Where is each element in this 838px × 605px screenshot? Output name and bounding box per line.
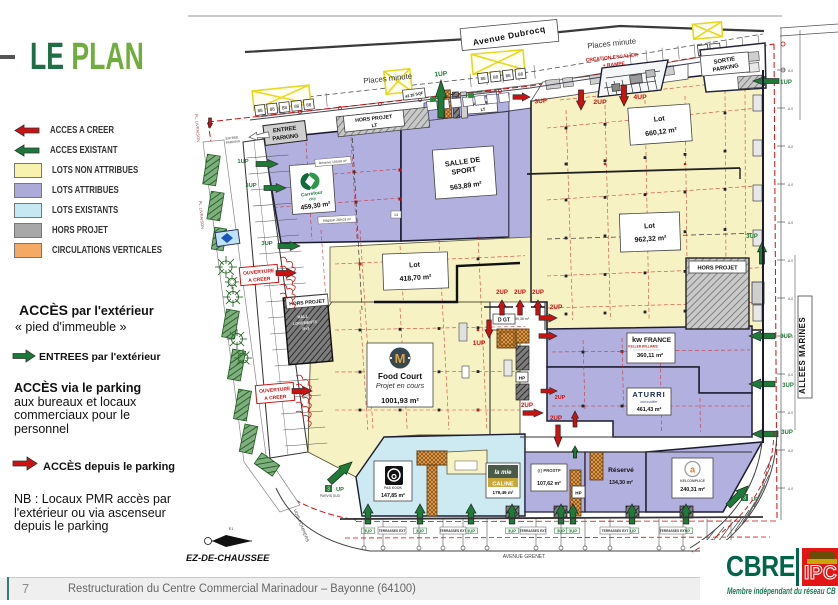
svg-text:KELCOMPLICE: KELCOMPLICE <box>680 479 705 483</box>
svg-text:4UP: 4UP <box>633 94 647 101</box>
svg-text:TERRASSES EXT: TERRASSES EXT <box>660 529 687 533</box>
svg-text:Places minute: Places minute <box>587 36 637 50</box>
svg-text:A.0: A.0 <box>788 183 793 187</box>
svg-text:2UP: 2UP <box>496 290 508 296</box>
svg-text:HP: HP <box>575 491 581 496</box>
svg-text:3UP: 3UP <box>467 529 475 534</box>
svg-text:3UP: 3UP <box>569 529 577 534</box>
svg-text:2UP: 2UP <box>532 290 544 296</box>
svg-text:E1: E1 <box>229 527 233 531</box>
svg-text:A.0: A.0 <box>788 259 793 263</box>
svg-text:3UP: 3UP <box>416 529 424 534</box>
svg-text:HP: HP <box>519 376 525 381</box>
svg-text:PAS KOOK: PAS KOOK <box>384 486 402 490</box>
svg-text:immobilier: immobilier <box>640 400 658 404</box>
svg-text:Lot: Lot <box>644 223 656 231</box>
svg-text:Food Court: Food Court <box>378 372 422 381</box>
svg-text:1UP: 1UP <box>434 70 448 78</box>
svg-text:R+3: R+3 <box>302 327 309 332</box>
svg-text:VOIE POMPIERS: VOIE POMPIERS <box>293 508 311 542</box>
svg-text:147,85 m²: 147,85 m² <box>381 493 405 499</box>
svg-text:PARVIS SUD: PARVIS SUD <box>320 494 341 498</box>
svg-text:M: M <box>395 351 406 366</box>
svg-text:3UP: 3UP <box>746 234 758 240</box>
svg-text:UP: UP <box>336 487 344 493</box>
svg-text:la mie: la mie <box>494 470 512 476</box>
svg-text:A.0: A.0 <box>788 373 793 377</box>
svg-text:PL. LIVRAISON: PL. LIVRAISON <box>194 113 201 142</box>
svg-text:Lot: Lot <box>409 262 421 270</box>
svg-text:A.0: A.0 <box>788 297 793 301</box>
svg-text:ATURRI: ATURRI <box>632 390 665 399</box>
svg-text:2UP: 2UP <box>555 395 566 401</box>
svg-text:3UP: 3UP <box>245 183 256 189</box>
svg-text:240,31 m²: 240,31 m² <box>680 487 705 493</box>
svg-text:3: 3 <box>327 487 330 493</box>
svg-text:HORS PROJET: HORS PROJET <box>697 266 738 272</box>
svg-text:TERRASSES EXT: TERRASSES EXT <box>602 529 629 533</box>
svg-text:360,11 m²: 360,11 m² <box>637 352 663 359</box>
svg-text:CALINE: CALINE <box>492 482 514 488</box>
svg-text:PL. LIVRAISON: PL. LIVRAISON <box>198 200 205 229</box>
svg-text:3UP: 3UP <box>508 529 516 534</box>
svg-text:TERRASSES EXT: TERRASSES EXT <box>520 529 547 533</box>
svg-text:A.0: A.0 <box>788 107 793 111</box>
svg-text:1UP: 1UP <box>237 159 248 165</box>
svg-text:Réservé: Réservé <box>608 467 634 474</box>
svg-text:3UP: 3UP <box>364 529 372 534</box>
svg-text:FRANCE: FRANCE <box>644 337 672 344</box>
svg-text:461,43 m²: 461,43 m² <box>637 407 662 413</box>
svg-text:LT: LT <box>371 123 377 130</box>
svg-text:EZ-DE-CHAUSSEE: EZ-DE-CHAUSSEE <box>186 552 270 563</box>
svg-text:ALLEES MARINES: ALLEES MARINES <box>798 317 807 394</box>
svg-text:A.0: A.0 <box>788 411 793 415</box>
svg-text:A.0: A.0 <box>788 69 793 73</box>
svg-text:3UP: 3UP <box>261 241 272 247</box>
svg-text:89,36 m²: 89,36 m² <box>515 317 530 321</box>
svg-text:2UP: 2UP <box>521 402 533 409</box>
svg-text:14: 14 <box>394 213 398 217</box>
svg-text:2UP: 2UP <box>550 415 562 422</box>
svg-text:2UP: 2UP <box>514 290 526 296</box>
svg-text:PARKING: PARKING <box>225 139 240 145</box>
svg-text:A.0: A.0 <box>788 487 793 491</box>
svg-text:3UP: 3UP <box>534 97 548 105</box>
svg-text:Projet en cours: Projet en cours <box>376 381 425 390</box>
svg-text:2UP: 2UP <box>550 304 563 311</box>
svg-text:3UP: 3UP <box>782 383 794 389</box>
svg-text:3UP: 3UP <box>781 430 793 436</box>
svg-text:1UP: 1UP <box>780 80 792 86</box>
svg-text:179,49 m²: 179,49 m² <box>493 490 514 495</box>
svg-text:kw: kw <box>632 335 642 344</box>
svg-text:HALL: HALL <box>297 314 309 320</box>
svg-text:KELLER WILLIAMS: KELLER WILLIAMS <box>628 345 657 349</box>
svg-text:TERRASSES EXT: TERRASSES EXT <box>440 529 467 533</box>
svg-text:A.0: A.0 <box>788 449 793 453</box>
svg-text:A.0: A.0 <box>788 221 793 225</box>
svg-text:1UP: 1UP <box>473 340 486 347</box>
svg-text:D GT: D GT <box>498 318 510 324</box>
svg-text:TERRASSES EXT: TERRASSES EXT <box>379 529 406 533</box>
svg-text:107,62 m²: 107,62 m² <box>537 481 561 487</box>
svg-text:⟨⟨⟨ PROSTP: ⟨⟨⟨ PROSTP <box>537 468 560 473</box>
svg-text:134,30 m²: 134,30 m² <box>609 480 633 486</box>
svg-text:AVENUE GRENET: AVENUE GRENET <box>503 554 545 560</box>
svg-text:1001,93 m²: 1001,93 m² <box>381 396 419 405</box>
svg-text:A.0: A.0 <box>788 145 793 149</box>
svg-text:2UP: 2UP <box>593 99 607 106</box>
svg-text:A.0: A.0 <box>788 335 793 339</box>
